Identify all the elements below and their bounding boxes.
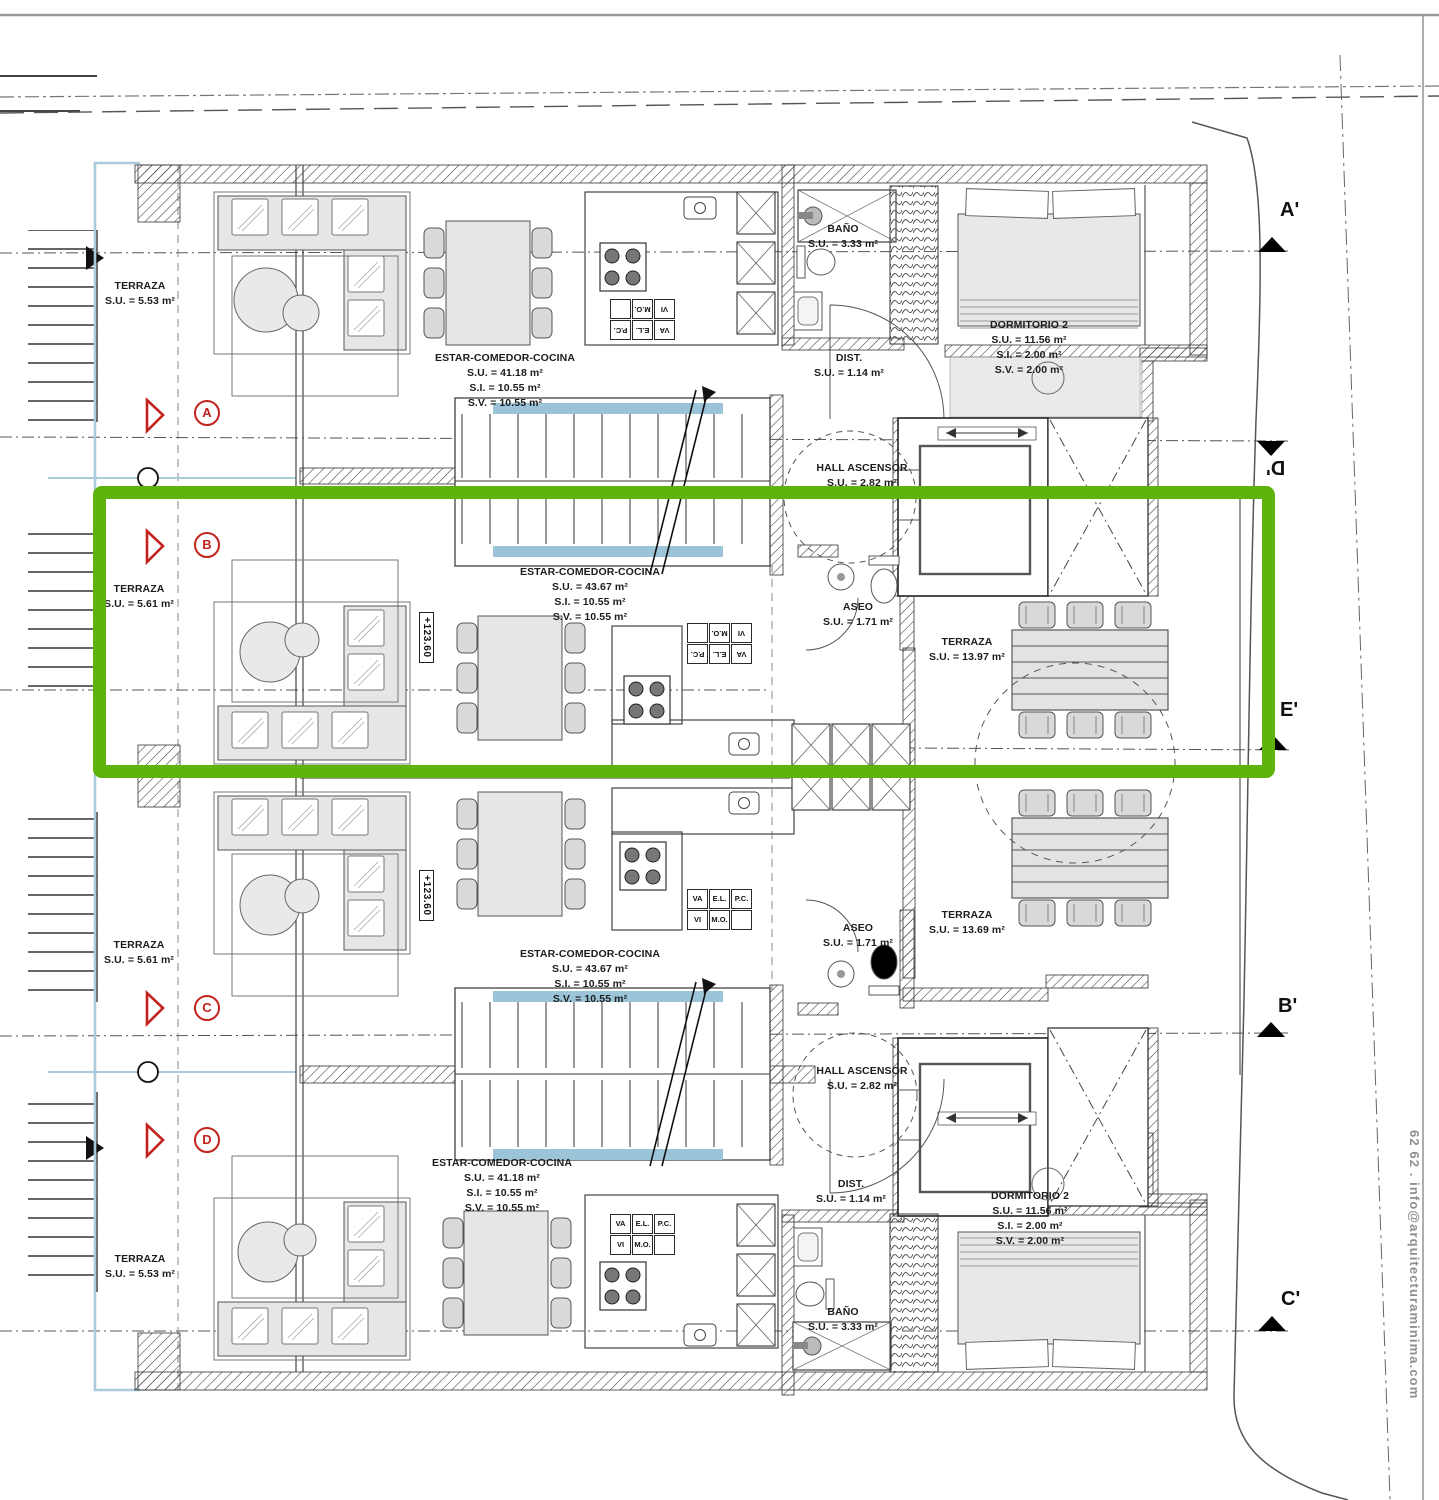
section-label-a: A' <box>1280 199 1299 222</box>
room-name: ESTAR-COMEDOR-COCINA <box>435 351 575 366</box>
room-name: TERRAZA <box>104 938 174 953</box>
room-name: TERRAZA <box>105 1252 175 1267</box>
room-area: S.I. = 10.55 m² <box>520 977 660 992</box>
room-area: S.V. = 2.00 m² <box>991 1234 1069 1249</box>
kitchen-code: M.O. <box>632 1235 653 1255</box>
room-area: S.V. = 10.55 m² <box>435 396 575 411</box>
kitchen-code: E.L. <box>632 320 653 340</box>
room-label-terraza-a: TERRAZA S.U. = 5.53 m² <box>105 279 175 309</box>
room-label-dormitorio-a: DORMITORIO 2 S.U. = 11.56 m² S.I. = 2.00… <box>990 318 1068 378</box>
kitchen-code-empty <box>610 299 631 319</box>
section-label-e: E' <box>1280 699 1298 722</box>
kitchen-code: VI <box>654 299 675 319</box>
room-name: HALL ASCENSOR <box>816 1064 907 1079</box>
room-area: S.U. = 1.71 m² <box>823 936 893 951</box>
kitchen-code: VA <box>654 320 675 340</box>
bed <box>958 1232 1140 1344</box>
room-area: S.U. = 41.18 m² <box>435 366 575 381</box>
room-area: S.U. = 1.14 m² <box>814 366 884 381</box>
unit-badge-d: D <box>194 1127 220 1153</box>
dining-table <box>446 221 530 345</box>
kitchen-code: VA <box>610 1214 631 1234</box>
room-name: HALL ASCENSOR <box>816 461 907 476</box>
room-name: ESTAR-COMEDOR-COCINA <box>520 947 660 962</box>
room-area: S.I. = 2.00 m² <box>990 348 1068 363</box>
room-name: DIST. <box>814 351 884 366</box>
room-area: S.V. = 10.55 m² <box>432 1201 572 1216</box>
floor-plan-page: { "units": { "a": { "letter": "A", "terr… <box>0 0 1439 1500</box>
kitchen-codes-d: VA E.L. P.C. VI M.O. <box>610 1214 675 1255</box>
kitchen-code-empty <box>731 910 752 930</box>
room-name: TERRAZA <box>105 279 175 294</box>
room-label-aseo-c: ASEO S.U. = 1.71 m² <box>823 921 893 951</box>
room-name: TERRAZA <box>929 908 1005 923</box>
kitchen-code: M.O. <box>709 910 730 930</box>
room-area: S.V. = 2.00 m² <box>990 363 1068 378</box>
kitchen-codes-a: VA E.L. P.C. VI M.O. <box>610 299 675 340</box>
room-label-dist-d: DIST. S.U. = 1.14 m² <box>816 1177 886 1207</box>
room-area: S.U. = 11.56 m² <box>990 333 1068 348</box>
room-area: S.U. = 41.18 m² <box>432 1171 572 1186</box>
room-area: S.U. = 5.61 m² <box>104 953 174 968</box>
toilet <box>797 246 805 278</box>
unit-d-arrow-icon <box>147 1125 163 1156</box>
room-area: S.U. = 5.53 m² <box>105 1267 175 1282</box>
unit-badge-c: C <box>194 995 220 1021</box>
wardrobe <box>890 1214 938 1372</box>
room-area: S.U. = 3.33 m² <box>808 237 878 252</box>
unit-badge-a: A <box>194 400 220 426</box>
room-name: BAÑO <box>808 222 878 237</box>
section-cut-triangles <box>1257 237 1287 1331</box>
wardrobe <box>890 186 938 344</box>
kitchen-code: E.L. <box>709 889 730 909</box>
section-label-c: C' <box>1281 1288 1300 1311</box>
level-marker-c: +123.60 <box>419 870 434 921</box>
unit-a-arrow-icon <box>147 400 163 431</box>
kitchen-code: P.C. <box>731 889 752 909</box>
room-label-bano-d: BAÑO S.U. = 3.33 m² <box>808 1305 878 1335</box>
room-area: S.U. = 1.14 m² <box>816 1192 886 1207</box>
watermark-text: 62 62 . info@arquitecturaminima.com <box>1398 1130 1422 1498</box>
room-area: S.U. = 3.33 m² <box>808 1320 878 1335</box>
kitchen-code-empty <box>654 1235 675 1255</box>
room-label-estar-a: ESTAR-COMEDOR-COCINA S.U. = 41.18 m² S.I… <box>435 351 575 411</box>
kitchen-code: P.C. <box>610 320 631 340</box>
room-name: ASEO <box>823 921 893 936</box>
room-name: DORMITORIO 2 <box>990 318 1068 333</box>
building-walls <box>135 165 1240 1395</box>
room-area: S.U. = 5.53 m² <box>105 294 175 309</box>
room-name: ESTAR-COMEDOR-COCINA <box>432 1156 572 1171</box>
unit-c-arrow-icon <box>147 993 163 1024</box>
dining-table <box>478 792 562 916</box>
kitchen-code: P.C. <box>654 1214 675 1234</box>
room-name: DORMITORIO 2 <box>991 1189 1069 1204</box>
dining-table <box>464 1211 548 1335</box>
kitchen-code: VA <box>687 889 708 909</box>
kitchen-code: M.O. <box>632 299 653 319</box>
kitchen-code: VI <box>610 1235 631 1255</box>
room-label-hall-c: HALL ASCENSOR S.U. = 2.82 m² <box>816 1064 907 1094</box>
room-label-dist-a: DIST. S.U. = 1.14 m² <box>814 351 884 381</box>
kitchen-counter <box>612 788 794 834</box>
section-a-triangle-icon <box>1258 237 1286 252</box>
room-label-estar-c: ESTAR-COMEDOR-COCINA S.U. = 43.67 m² S.I… <box>520 947 660 1007</box>
room-area: S.I. = 10.55 m² <box>435 381 575 396</box>
section-label-b: B' <box>1278 995 1297 1018</box>
room-area: S.I. = 2.00 m² <box>991 1219 1069 1234</box>
axis-node-top <box>138 468 158 488</box>
kitchen-code: VI <box>687 910 708 930</box>
room-name: BAÑO <box>808 1305 878 1320</box>
axis-node-bottom <box>138 1062 158 1082</box>
room-area: S.V. = 10.55 m² <box>520 992 660 1007</box>
room-name: DIST. <box>816 1177 886 1192</box>
section-label-d: D' <box>1266 455 1285 478</box>
selection-highlight <box>93 486 1275 778</box>
room-area: S.U. = 2.82 m² <box>816 1079 907 1094</box>
bed <box>958 214 1140 326</box>
section-d-triangle-icon <box>1257 441 1285 456</box>
room-label-terraza-d: TERRAZA S.U. = 5.53 m² <box>105 1252 175 1282</box>
kitchen-codes-c: VA E.L. P.C. VI M.O. <box>687 889 752 930</box>
room-label-bano-a: BAÑO S.U. = 3.33 m² <box>808 222 878 252</box>
room-area: S.U. = 43.67 m² <box>520 962 660 977</box>
room-area: S.U. = 11.56 m² <box>991 1204 1069 1219</box>
room-area: S.U. = 13.69 m² <box>929 923 1005 938</box>
kitchen-code: E.L. <box>632 1214 653 1234</box>
section-c-triangle-icon <box>1258 1316 1286 1331</box>
room-label-terraza-c: TERRAZA S.U. = 5.61 m² <box>104 938 174 968</box>
unit-c-aseo-terrace <box>806 790 1168 995</box>
section-b-triangle-icon <box>1257 1022 1285 1037</box>
room-label-terraza-ext-c: TERRAZA S.U. = 13.69 m² <box>929 908 1005 938</box>
room-label-dormitorio-d: DORMITORIO 2 S.U. = 11.56 m² S.I. = 2.00… <box>991 1189 1069 1249</box>
room-area: S.I. = 10.55 m² <box>432 1186 572 1201</box>
room-label-estar-d: ESTAR-COMEDOR-COCINA S.U. = 41.18 m² S.I… <box>432 1156 572 1216</box>
